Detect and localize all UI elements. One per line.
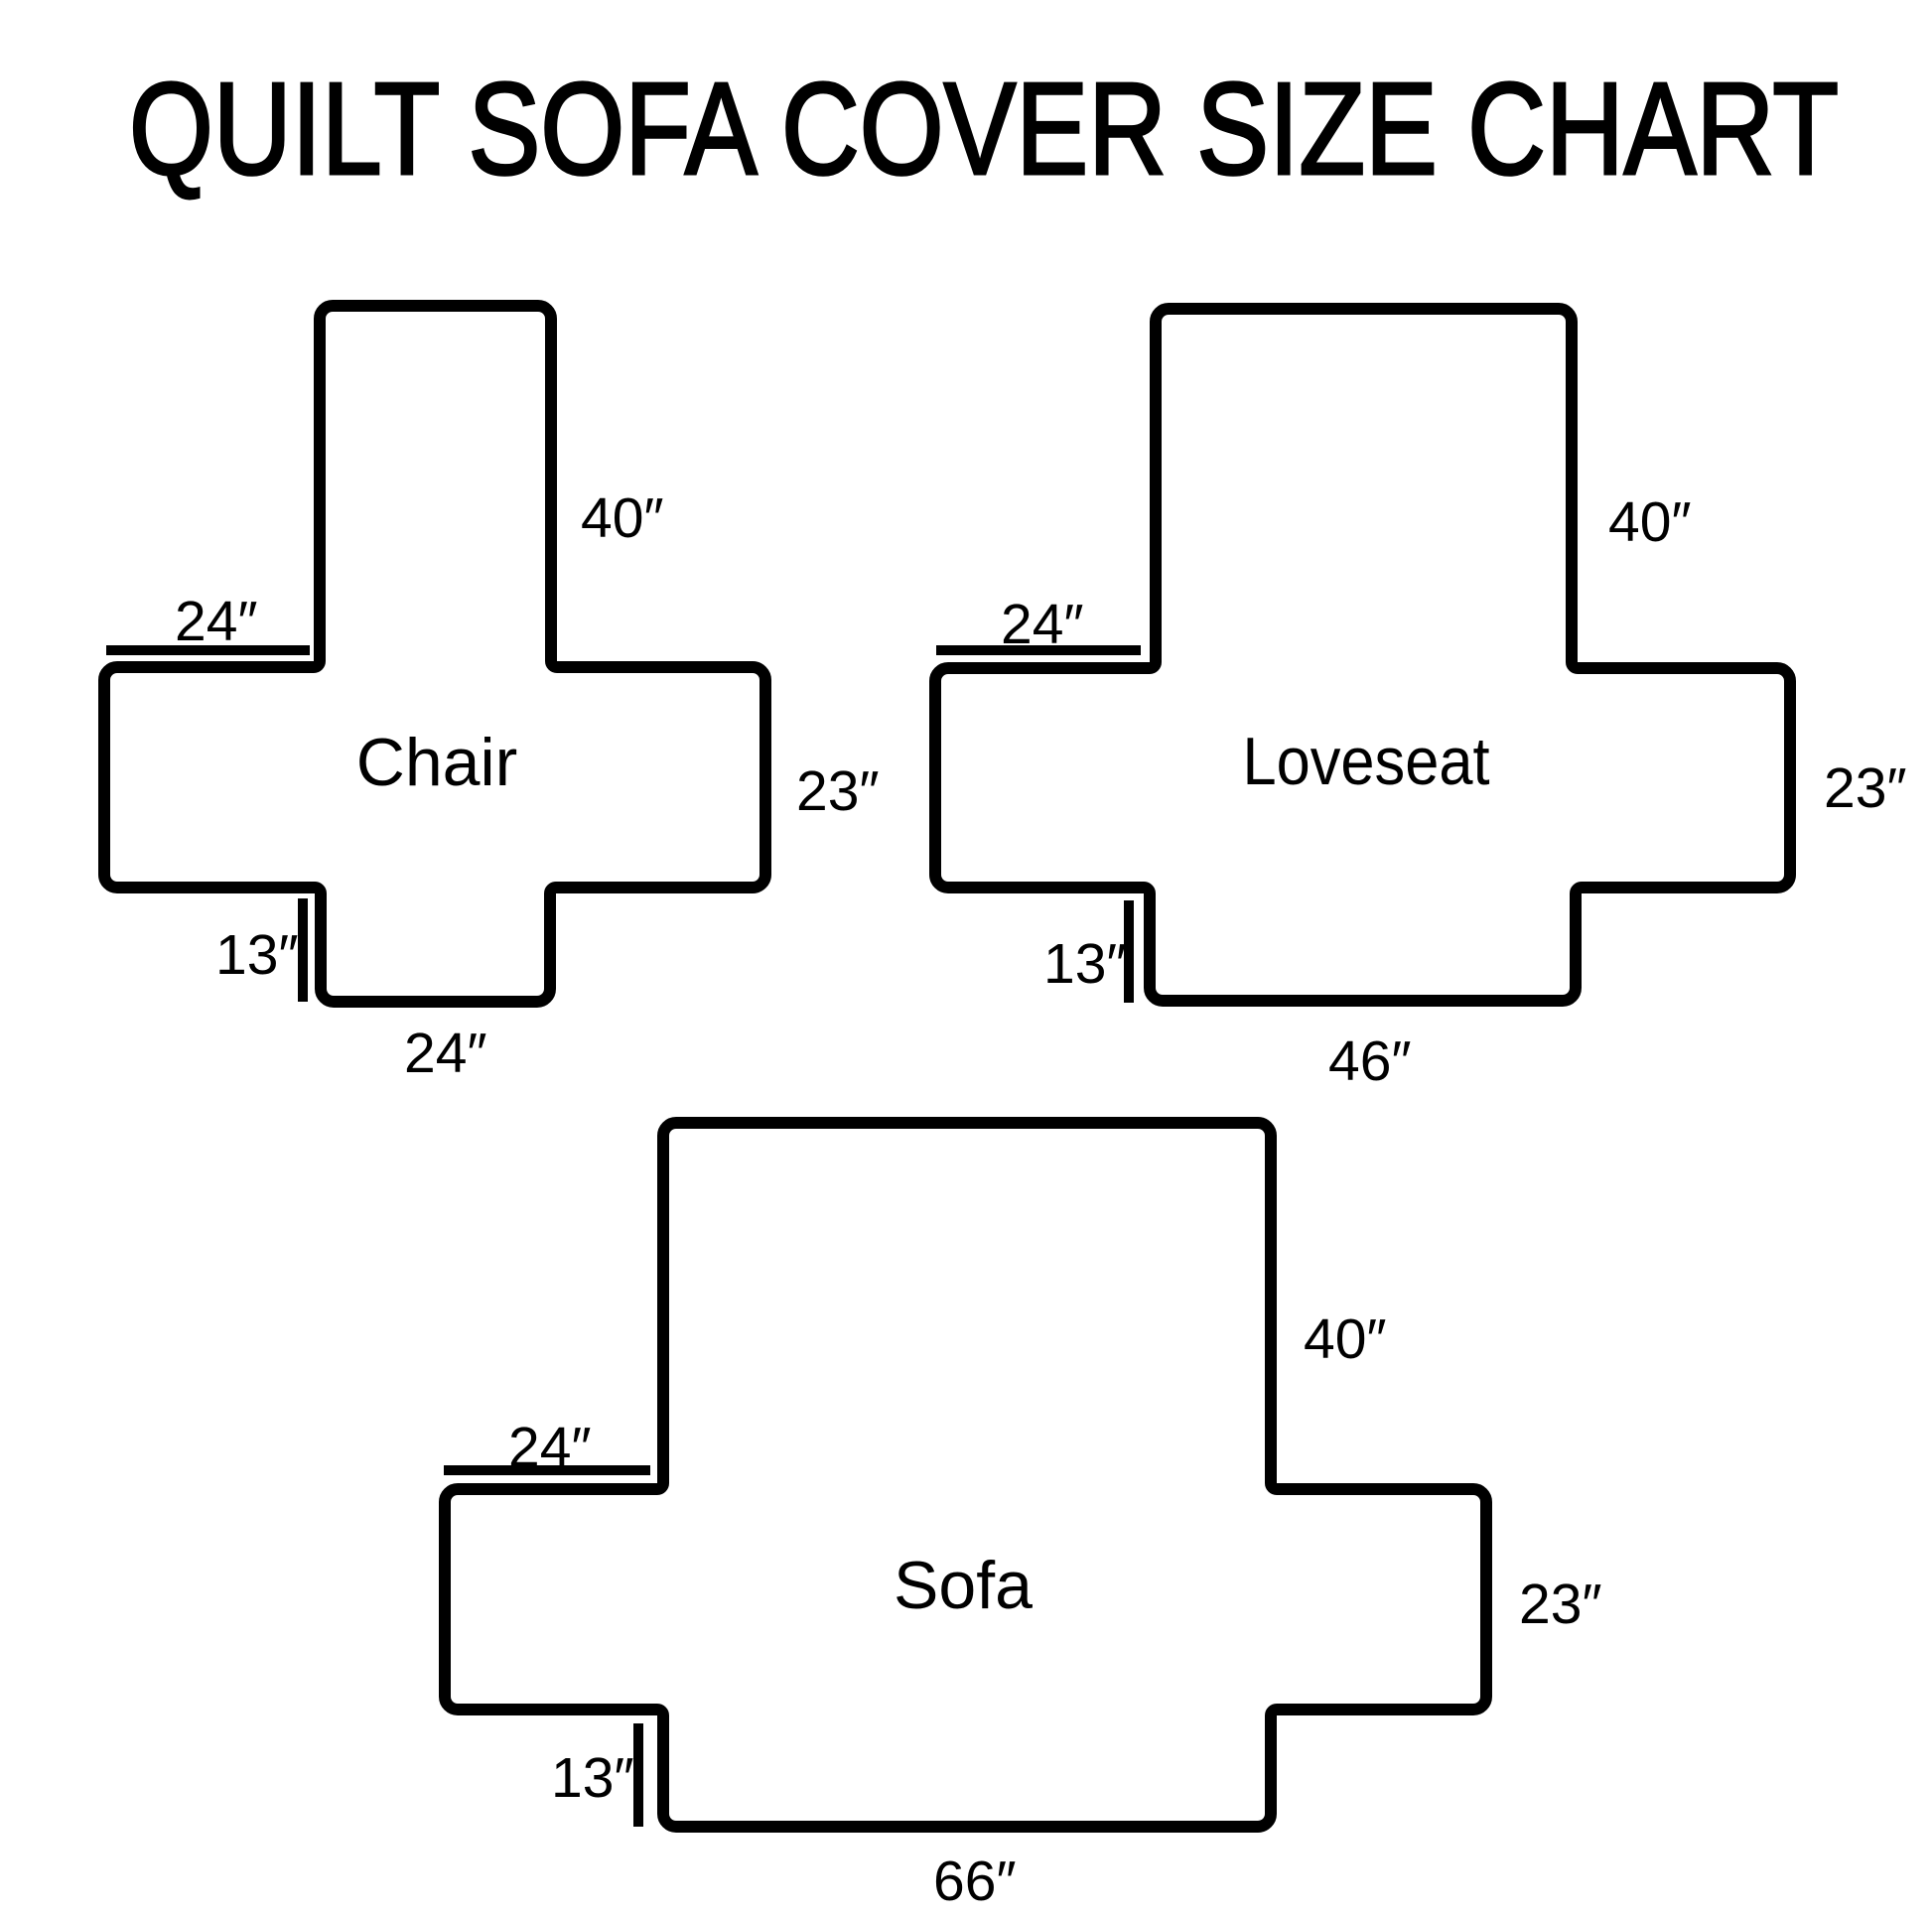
svg-text:40″: 40″ <box>581 486 664 550</box>
svg-text:40″: 40″ <box>1304 1307 1387 1371</box>
svg-text:46″: 46″ <box>1328 1029 1412 1093</box>
svg-text:24″: 24″ <box>1001 593 1084 656</box>
svg-text:23″: 23″ <box>1519 1573 1602 1636</box>
svg-text:Chair: Chair <box>356 725 518 800</box>
svg-text:23″: 23″ <box>1824 756 1907 820</box>
svg-text:QUILT SOFA COVER SIZE CHART: QUILT SOFA COVER SIZE CHART <box>129 56 1839 202</box>
svg-text:13″: 13″ <box>215 923 299 987</box>
svg-text:13″: 13″ <box>551 1746 634 1810</box>
svg-text:Sofa: Sofa <box>894 1548 1033 1623</box>
svg-text:13″: 13″ <box>1043 932 1127 996</box>
svg-text:23″: 23″ <box>796 759 880 823</box>
svg-text:66″: 66″ <box>933 1849 1017 1913</box>
svg-text:Loveseat: Loveseat <box>1243 724 1490 799</box>
svg-text:24″: 24″ <box>508 1416 592 1479</box>
svg-text:40″: 40″ <box>1608 490 1692 554</box>
svg-text:24″: 24″ <box>404 1022 487 1085</box>
svg-text:24″: 24″ <box>175 590 258 653</box>
